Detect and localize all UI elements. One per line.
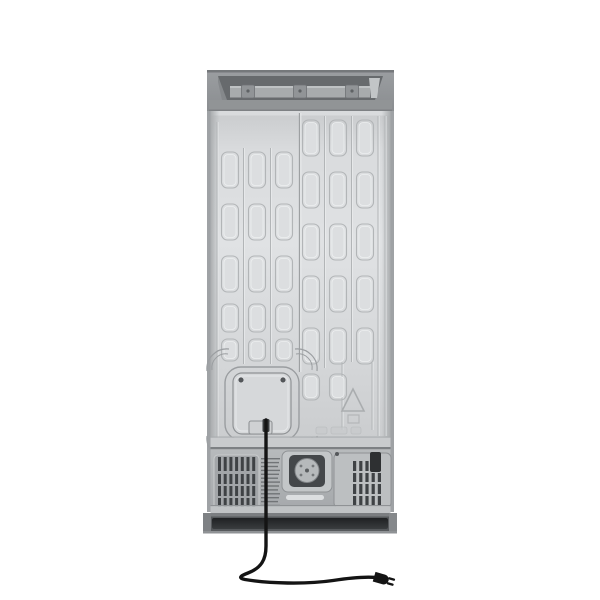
fitting-knob-dot	[300, 474, 303, 477]
embossed-slot-face	[305, 227, 317, 258]
vent-slat	[372, 473, 375, 482]
embossed-slot-face	[224, 207, 236, 238]
embossed-slot-face	[359, 227, 371, 258]
marking-segment	[331, 427, 347, 434]
clip-screw-icon	[350, 89, 353, 92]
vent-slat	[359, 473, 362, 482]
serial-label	[370, 452, 381, 472]
embossed-slot-face	[305, 377, 317, 398]
embossed-slot-face	[224, 259, 236, 290]
fine-vent-line	[261, 462, 279, 463]
fine-vent-line	[261, 481, 280, 482]
embossed-slot-face	[251, 259, 263, 290]
panel-bottom-band	[211, 438, 391, 447]
vent-slat	[378, 484, 381, 494]
kick-plate	[203, 513, 397, 534]
embossed-slot-face	[359, 331, 371, 362]
embossed-back-panel	[207, 111, 391, 458]
embossed-slot-face	[305, 123, 317, 154]
embossed-slot-face	[305, 279, 317, 310]
clip-screw-icon	[246, 89, 249, 92]
vent-slat	[252, 486, 255, 496]
marking-segment	[316, 427, 327, 434]
fine-vent-line	[261, 489, 278, 490]
kick-top-edge	[203, 513, 397, 517]
embossed-slot-face	[332, 377, 344, 398]
fine-vent-line	[261, 493, 280, 494]
embossed-slot-face	[332, 279, 344, 310]
kick-left-cap	[203, 513, 211, 534]
vent-slat	[353, 461, 356, 471]
vent-slat	[359, 484, 362, 494]
kick-recess	[212, 518, 388, 529]
vent-slat	[229, 486, 232, 496]
refrigerator-illustration	[0, 0, 600, 600]
compressor-compartment	[211, 447, 392, 513]
vent-slat	[218, 486, 221, 496]
screw-icon	[281, 378, 285, 382]
vent-slat	[378, 473, 381, 482]
embossed-slot-face	[359, 123, 371, 154]
screw-icon	[335, 452, 339, 456]
top-mounting-rail	[207, 70, 394, 112]
body-right-edge	[391, 111, 395, 512]
refrigerator-back	[203, 70, 397, 534]
embossed-slot-face	[305, 175, 317, 206]
vent-slat	[224, 474, 227, 484]
vent-slat	[365, 461, 368, 471]
bay-bottom-lip	[211, 506, 391, 513]
vent-slat	[378, 496, 381, 506]
plug-prong	[388, 577, 395, 581]
vent-slat	[235, 486, 238, 496]
panel-bottom-hairline	[211, 437, 391, 438]
right-panel-face	[334, 453, 391, 508]
cap-lower-band	[209, 100, 392, 110]
vent-slat	[372, 484, 375, 494]
fine-vent-line	[261, 485, 279, 486]
product-image-refrigerator-back	[0, 0, 600, 600]
fine-vent-line	[261, 466, 278, 467]
bay-bottom-hairline	[211, 505, 391, 506]
bay-top-shadow	[211, 447, 391, 449]
fitting-knob-dot	[312, 474, 315, 477]
fine-vent-line	[261, 501, 278, 502]
vent-slat	[372, 496, 375, 506]
vent-slat	[359, 461, 362, 471]
embossed-slot-face	[332, 331, 344, 362]
embossed-slot-face	[278, 259, 290, 290]
vent-slat	[218, 474, 221, 484]
fitting-knob-dot	[300, 465, 303, 468]
embossed-slot-face	[224, 307, 236, 330]
vent-slat	[229, 457, 232, 471]
embossed-slot-face	[332, 123, 344, 154]
embossed-slot-face	[224, 155, 236, 186]
embossed-slot-face	[278, 155, 290, 186]
embossed-slot-face	[251, 307, 263, 330]
vent-slat	[241, 474, 244, 484]
embossed-slot-face	[332, 175, 344, 206]
embossed-marking	[316, 427, 361, 434]
cap-bottom-hairline	[209, 110, 392, 112]
embossed-slot-face	[251, 155, 263, 186]
fine-vent-line	[261, 497, 279, 498]
vent-slat	[247, 474, 250, 484]
vent-slat	[353, 484, 356, 494]
vent-slat	[252, 457, 255, 471]
vent-slat	[353, 496, 356, 506]
marking-segment	[351, 427, 361, 434]
embossed-slot-face	[332, 227, 344, 258]
vent-slat	[359, 496, 362, 506]
fitting-knob-center	[305, 469, 309, 473]
body-left-edge	[207, 111, 211, 512]
vent-slat	[247, 457, 250, 471]
vent-slat	[365, 473, 368, 482]
vent-slat	[235, 474, 238, 484]
fitting-lower-bar	[286, 495, 324, 500]
embossed-slot-face	[251, 342, 263, 359]
embossed-slot-face	[359, 279, 371, 310]
embossed-slot-face	[251, 207, 263, 238]
vent-slat	[365, 484, 368, 494]
vent-slat	[224, 486, 227, 496]
vent-slat	[353, 473, 356, 482]
cap-top-edge	[207, 70, 394, 73]
vent-slat	[241, 457, 244, 471]
clip-screw-icon	[298, 89, 301, 92]
vent-slat	[235, 457, 238, 471]
vent-slat	[229, 474, 232, 484]
vent-slat	[365, 496, 368, 506]
vent-slat	[224, 457, 227, 471]
vent-slat	[218, 457, 221, 471]
vent-slat	[241, 486, 244, 496]
fine-vent-line	[261, 470, 280, 471]
fine-vent-line	[261, 458, 280, 459]
power-plug-icon	[373, 572, 396, 587]
embossed-slot-face	[278, 307, 290, 330]
kick-right-cap	[389, 513, 397, 534]
screw-icon	[239, 378, 243, 382]
fine-vent-line	[261, 474, 279, 475]
fine-vent-line	[261, 478, 278, 479]
bay-screws	[335, 452, 339, 456]
embossed-slot-face	[359, 175, 371, 206]
vent-slat	[252, 474, 255, 484]
kick-bottom-lip	[203, 531, 397, 534]
right-bay-panel	[334, 452, 391, 508]
embossed-slot-face	[278, 342, 290, 359]
embossed-slot-face	[224, 342, 236, 359]
fitting-knob-dot	[312, 465, 315, 468]
vent-slat	[247, 486, 250, 496]
embossed-slot-face	[278, 207, 290, 238]
plug-prong	[387, 582, 394, 586]
